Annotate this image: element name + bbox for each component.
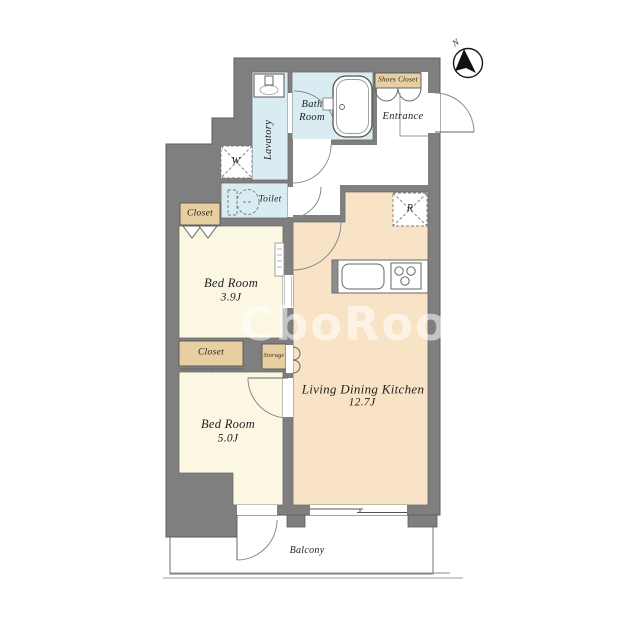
refrigerator-label: R — [407, 204, 413, 214]
hallway-lower — [293, 185, 340, 215]
sink-icon — [254, 74, 284, 97]
lavatory-label: Lavatory — [264, 120, 275, 160]
floor-plan: Lavatory Bath Room Toilet Entrance Shoes… — [0, 0, 640, 640]
bath-label-line2: Room — [299, 113, 325, 124]
opening-balcony-door — [237, 505, 277, 515]
toilet-label: Toilet — [258, 195, 281, 205]
north-compass-icon — [454, 49, 483, 78]
hallway-upper — [293, 145, 377, 185]
bedroom-lower-name: Bed Room — [201, 418, 255, 431]
opening-bedroom-lower-door — [283, 378, 293, 417]
room-ldk — [293, 192, 428, 505]
opening-storage — [286, 345, 293, 373]
bedroom-upper-name: Bed Room — [204, 277, 258, 290]
shoes-closet-label: Shoes Closet — [378, 77, 418, 84]
ldk-size: 12.7J — [349, 397, 376, 409]
entrance-notch — [421, 72, 428, 88]
opening-ldk-window — [310, 505, 407, 515]
opening-hall — [293, 139, 331, 145]
bedroom-lower-size: 5.0J — [218, 433, 239, 445]
opening-lavatory-bath — [288, 93, 292, 133]
entrance-door-arc — [435, 93, 474, 132]
balcony-label: Balcony — [290, 546, 325, 556]
opening-toilet — [288, 187, 293, 217]
bedroom-upper-size: 3.9J — [221, 292, 242, 304]
ldk-name: Living Dining Kitchen — [302, 383, 425, 396]
kitchen-counter-icon — [332, 260, 428, 293]
closet-lower-label: Closet — [198, 348, 224, 358]
entrance-label: Entrance — [383, 112, 424, 123]
closet-upper-label: Closet — [187, 209, 213, 219]
wall-chunk-left — [287, 515, 305, 527]
wall-chunk-right — [408, 515, 437, 527]
washer-label: W — [232, 157, 241, 167]
floor-plan-drawing — [0, 0, 640, 640]
bath-label-line1: Bath — [301, 100, 322, 111]
opening-entrance-door — [428, 93, 440, 133]
storage-label: Storage — [264, 353, 285, 359]
